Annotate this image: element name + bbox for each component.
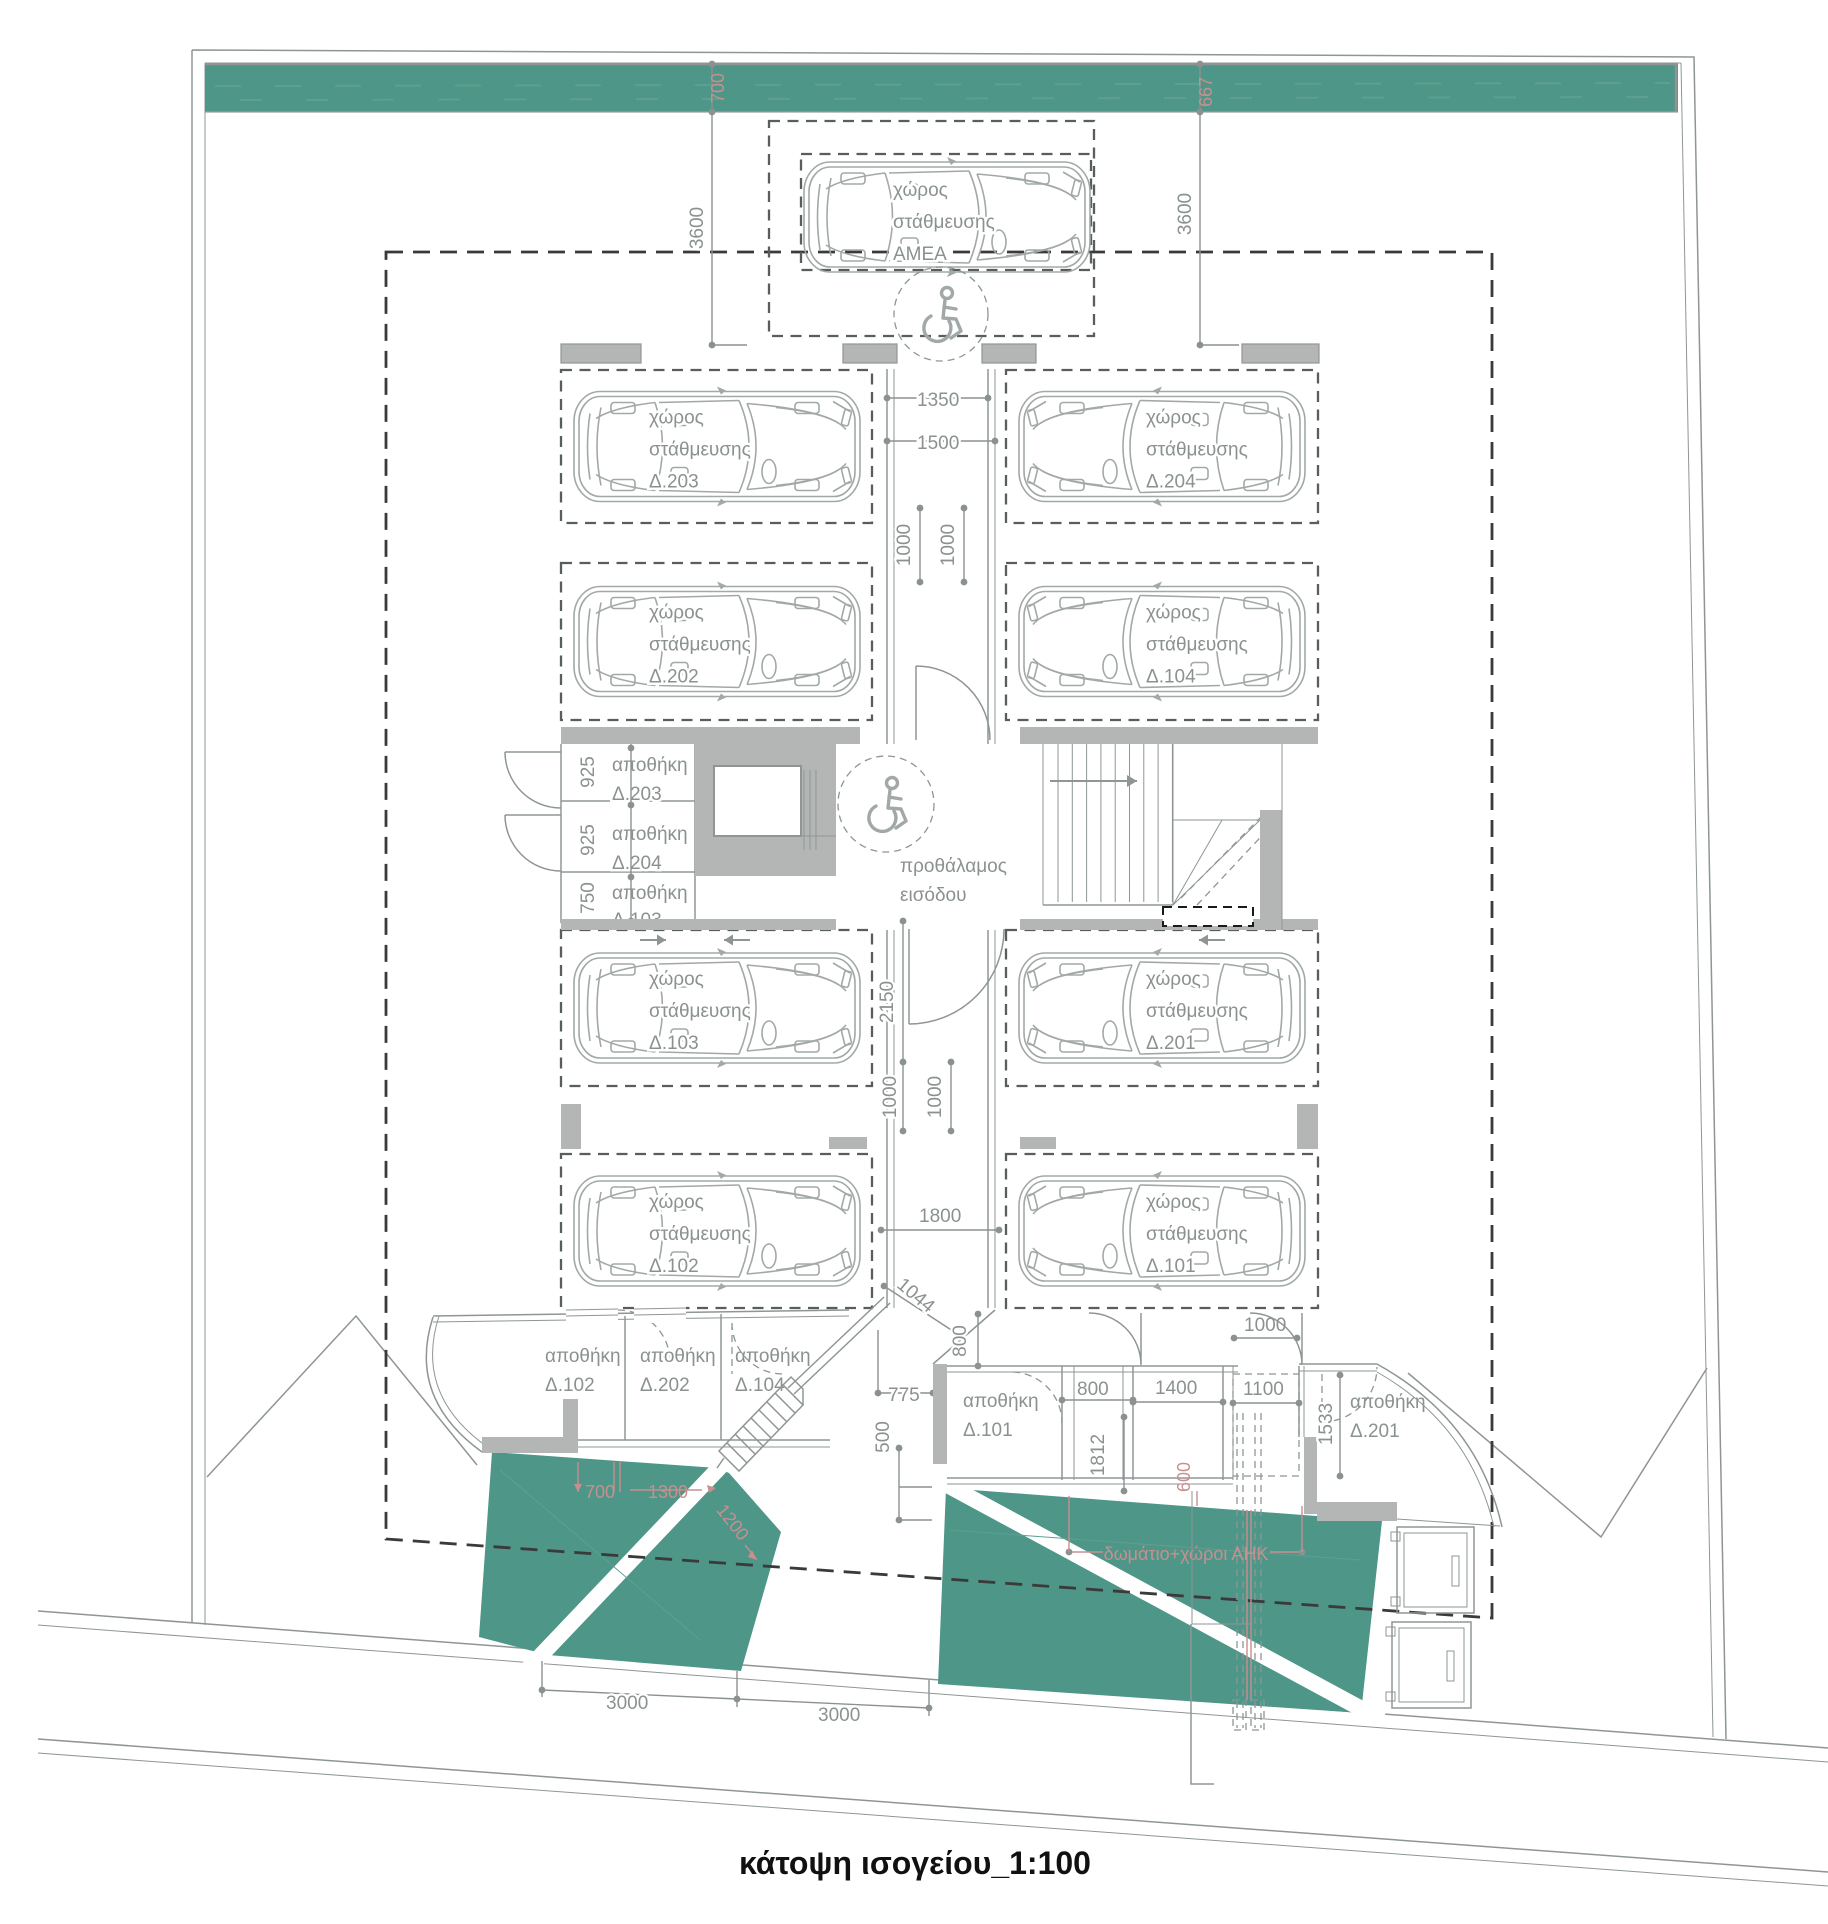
- svg-text:χώρος: χώρος: [1146, 1192, 1201, 1213]
- svg-text:1800: 1800: [919, 1206, 961, 1227]
- svg-text:1100: 1100: [1243, 1379, 1284, 1400]
- svg-text:αποθήκη: αποθήκη: [612, 883, 688, 904]
- svg-text:στάθμευσης: στάθμευσης: [1146, 1001, 1248, 1022]
- svg-text:775: 775: [888, 1385, 920, 1406]
- svg-text:3000: 3000: [818, 1705, 860, 1726]
- svg-text:εισόδου: εισόδου: [900, 885, 967, 906]
- svg-text:στάθμευσης: στάθμευσης: [1146, 635, 1248, 656]
- svg-text:χώρος: χώρος: [649, 1192, 704, 1213]
- svg-text:στάθμευσης: στάθμευσης: [893, 212, 995, 233]
- svg-text:αποθήκη: αποθήκη: [612, 824, 688, 845]
- svg-text:700: 700: [708, 73, 728, 103]
- svg-text:800: 800: [950, 1325, 971, 1357]
- svg-text:Δ.102: Δ.102: [649, 1256, 699, 1277]
- svg-text:Δ.201: Δ.201: [1146, 1033, 1196, 1054]
- svg-text:Δ.101: Δ.101: [1146, 1256, 1196, 1277]
- svg-text:χώρος: χώρος: [649, 603, 704, 624]
- svg-text:Δ.202: Δ.202: [640, 1375, 690, 1396]
- svg-text:1350: 1350: [917, 390, 959, 411]
- svg-text:Δ.102: Δ.102: [545, 1375, 595, 1396]
- svg-text:1000: 1000: [894, 524, 915, 566]
- svg-text:1000: 1000: [938, 524, 959, 566]
- svg-text:1533: 1533: [1316, 1403, 1337, 1445]
- svg-text:1400: 1400: [1155, 1378, 1197, 1399]
- svg-text:1300: 1300: [648, 1482, 688, 1502]
- svg-text:Δ.204: Δ.204: [612, 853, 662, 874]
- svg-text:χώρος: χώρος: [1146, 603, 1201, 624]
- svg-text:στάθμευσης: στάθμευσης: [649, 635, 751, 656]
- svg-text:αποθήκη: αποθήκη: [612, 755, 688, 776]
- svg-text:στάθμευσης: στάθμευσης: [649, 440, 751, 461]
- svg-text:Δ.204: Δ.204: [1146, 472, 1196, 493]
- svg-text:Δ.104: Δ.104: [1146, 667, 1196, 688]
- svg-text:Δ.201: Δ.201: [1350, 1421, 1400, 1442]
- svg-text:προθάλαμος: προθάλαμος: [900, 856, 1007, 877]
- svg-text:χώρος: χώρος: [1146, 969, 1201, 990]
- svg-text:1812: 1812: [1088, 1434, 1109, 1476]
- svg-text:αποθήκη: αποθήκη: [545, 1346, 621, 1367]
- svg-text:3000: 3000: [606, 1693, 648, 1714]
- svg-text:2150: 2150: [877, 981, 898, 1023]
- svg-text:αποθήκη: αποθήκη: [1350, 1392, 1426, 1413]
- svg-text:αποθήκη: αποθήκη: [735, 1346, 811, 1367]
- svg-text:800: 800: [1077, 1379, 1109, 1400]
- svg-text:600: 600: [1174, 1462, 1194, 1492]
- svg-text:χώρος: χώρος: [1146, 408, 1201, 429]
- svg-text:στάθμευσης: στάθμευσης: [649, 1224, 751, 1245]
- svg-text:ΑΜΕΑ: ΑΜΕΑ: [893, 244, 947, 265]
- svg-text:αποθήκη: αποθήκη: [963, 1391, 1039, 1412]
- svg-text:στάθμευσης: στάθμευσης: [1146, 1224, 1248, 1245]
- svg-text:χώρος: χώρος: [649, 408, 704, 429]
- svg-text:700: 700: [585, 1482, 615, 1502]
- svg-text:3600: 3600: [1175, 193, 1196, 235]
- svg-text:1000: 1000: [1244, 1315, 1286, 1336]
- svg-text:500: 500: [873, 1421, 894, 1453]
- svg-text:αποθήκη: αποθήκη: [640, 1346, 716, 1367]
- svg-text:925: 925: [578, 824, 599, 856]
- svg-text:Δ.203: Δ.203: [649, 472, 699, 493]
- svg-text:χώρος: χώρος: [649, 969, 704, 990]
- svg-text:Δ.103: Δ.103: [649, 1033, 699, 1054]
- svg-text:δωμάτιο+χώροι ΑΗΚ: δωμάτιο+χώροι ΑΗΚ: [1104, 1544, 1269, 1564]
- svg-text:3600: 3600: [687, 207, 708, 249]
- svg-text:750: 750: [578, 882, 599, 914]
- svg-text:στάθμευσης: στάθμευσης: [649, 1001, 751, 1022]
- svg-text:1000: 1000: [925, 1076, 946, 1118]
- svg-text:Δ.202: Δ.202: [649, 667, 699, 688]
- svg-text:Δ.101: Δ.101: [963, 1420, 1013, 1441]
- svg-text:1500: 1500: [917, 433, 959, 454]
- svg-text:925: 925: [578, 756, 599, 788]
- svg-text:1000: 1000: [880, 1076, 901, 1118]
- svg-text:χώρος: χώρος: [893, 180, 948, 201]
- svg-text:Δ.104: Δ.104: [735, 1375, 785, 1396]
- svg-text:Δ.203: Δ.203: [612, 784, 662, 805]
- svg-text:κάτοψη ισογείου_1:100: κάτοψη ισογείου_1:100: [739, 1845, 1091, 1881]
- svg-text:στάθμευσης: στάθμευσης: [1146, 440, 1248, 461]
- svg-text:667: 667: [1196, 77, 1216, 107]
